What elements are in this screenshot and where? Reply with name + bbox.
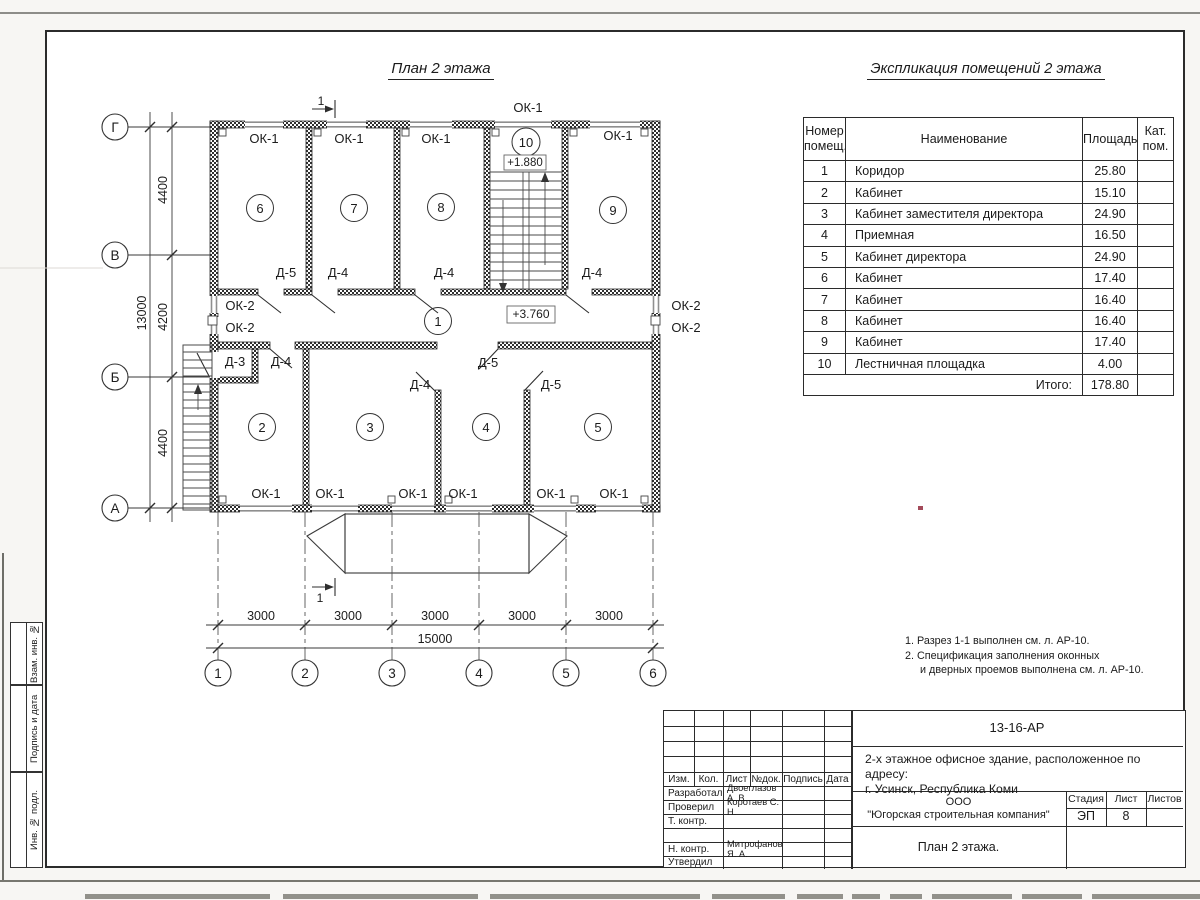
- level-value: +1.880: [507, 157, 543, 169]
- stamp-label: Подпись и дата: [27, 686, 42, 771]
- axis-letter: Б: [111, 370, 120, 385]
- window-label-ok1: ОК-1: [448, 486, 477, 501]
- notes-block: 1. Разрез 1-1 выполнен см. л. АР-10. 2. …: [905, 634, 1144, 678]
- room-number: 3: [366, 420, 373, 435]
- window-label-ok2: ОК-2: [225, 298, 254, 313]
- room-schedule-table: Номерпомещ. Наименование Площадь Кат.пом…: [803, 117, 1174, 396]
- stamp-blank-cell: [11, 773, 27, 867]
- role-name: Коротаев С. Н.: [723, 800, 782, 814]
- room-no: 6: [804, 267, 846, 288]
- axis-letter: В: [110, 248, 119, 263]
- table-row: 6Кабинет17.40: [804, 267, 1174, 288]
- room-cat: [1138, 161, 1174, 182]
- room-area: 17.40: [1083, 332, 1138, 353]
- room-cat: [1138, 182, 1174, 203]
- room-no: 8: [804, 310, 846, 331]
- window-labels: ОК-1 ОК-1 ОК-1 ОК-1 ОК-1 ОК-1 ОК-1 ОК-1 …: [225, 100, 700, 501]
- door-label-d5: Д-5: [478, 355, 498, 370]
- scanned-drawing-sheet: 1 2 3 4 5 6 7 8 9 10 +1.880 +3.760 ОК-1 …: [0, 0, 1200, 900]
- note-line: 1. Разрез 1-1 выполнен см. л. АР-10.: [905, 634, 1144, 649]
- role-label: Разработал: [664, 786, 723, 800]
- window-label-ok1: ОК-1: [536, 486, 565, 501]
- sheet-value: 8: [1106, 808, 1146, 826]
- room-no: 3: [804, 203, 846, 224]
- table-row: 4Приемная16.50: [804, 225, 1174, 246]
- room-area: 16.40: [1083, 310, 1138, 331]
- room-no: 4: [804, 225, 846, 246]
- room-number: 4: [482, 420, 489, 435]
- door-label-d4: Д-4: [434, 265, 454, 280]
- axis-number: 1: [214, 666, 222, 681]
- window-label-ok1: ОК-1: [334, 131, 363, 146]
- window-label-ok1: ОК-1: [421, 131, 450, 146]
- room-cat: [1138, 246, 1174, 267]
- table-row: 7Кабинет16.40: [804, 289, 1174, 310]
- stage-label: Стадия: [1066, 791, 1106, 808]
- room-number: 2: [258, 420, 265, 435]
- door-label-d5: Д-5: [276, 265, 296, 280]
- window-label-ok1: ОК-1: [398, 486, 427, 501]
- scan-edge-bottom: [0, 880, 1200, 882]
- dim-bottom: 3000: [508, 609, 536, 623]
- level-value: +3.760: [512, 307, 549, 321]
- room-no: 5: [804, 246, 846, 267]
- room-area: 24.90: [1083, 246, 1138, 267]
- table-row: 9Кабинет17.40: [804, 332, 1174, 353]
- room-number: 7: [350, 201, 357, 216]
- room-no: 1: [804, 161, 846, 182]
- door-label-d3: Д-3: [225, 354, 245, 369]
- dim-left: 4200: [156, 303, 170, 331]
- margin-stamp-vzam: Взам. инв. №: [10, 622, 43, 685]
- door-label-d4: Д-4: [271, 354, 291, 369]
- total-label: Итого:: [804, 374, 1083, 395]
- col-kol: Кол.: [694, 772, 723, 786]
- room-name: Коридор: [846, 161, 1083, 182]
- axis-letter: Г: [111, 120, 119, 135]
- stamp-blank-cell: [11, 623, 27, 684]
- room-area: 15.10: [1083, 182, 1138, 203]
- schedule-header-row: Номерпомещ. Наименование Площадь Кат.пом…: [804, 118, 1174, 161]
- document-number: 13-16-АР: [851, 711, 1183, 746]
- scan-artifact-strip: [0, 893, 1200, 900]
- room-no: 10: [804, 353, 846, 374]
- col-izm: Изм.: [664, 772, 694, 786]
- dim-left: 4400: [156, 176, 170, 204]
- room-name: Кабинет: [846, 267, 1083, 288]
- window-label-ok2: ОК-2: [671, 320, 700, 335]
- room-cat: [1138, 310, 1174, 331]
- sheet-label: Лист: [1106, 791, 1146, 808]
- total-area: 178.80: [1083, 374, 1138, 395]
- window-label-ok1: ОК-1: [513, 100, 542, 115]
- door-labels: Д-5 Д-4 Д-4 Д-4 Д-3 Д-4 Д-5 Д-4 Д-5: [225, 265, 602, 392]
- room-name: Кабинет: [846, 289, 1083, 310]
- note-line: и дверных проемов выполнена см. л. АР-10…: [905, 663, 1144, 678]
- stamp-label: Инв. № подл.: [27, 773, 42, 867]
- room-area: 17.40: [1083, 267, 1138, 288]
- room-cat: [1138, 225, 1174, 246]
- room-cat: [1138, 267, 1174, 288]
- room-cat: [1138, 203, 1174, 224]
- col-header-name: Наименование: [846, 118, 1083, 161]
- table-row: 5Кабинет директора24.90: [804, 246, 1174, 267]
- room-name: Кабинет директора: [846, 246, 1083, 267]
- title-block: Изм. Кол. Лист №док. Подпись Дата Разраб…: [663, 710, 1186, 868]
- door-label-d4: Д-4: [410, 377, 430, 392]
- table-row: 3Кабинет заместителя директора24.90: [804, 203, 1174, 224]
- margin-stamp-inv: Инв. № подл.: [10, 772, 43, 868]
- table-row: 2Кабинет15.10: [804, 182, 1174, 203]
- dim-bottom: 3000: [421, 609, 449, 623]
- dim-left: 4400: [156, 429, 170, 457]
- dimension-labels: 4400 4200 4400 13000 3000 3000 3000 3000…: [135, 176, 623, 646]
- axis-number: 3: [388, 666, 396, 681]
- window-label-ok2: ОК-2: [225, 320, 254, 335]
- scan-edge-left: [2, 553, 4, 882]
- door-label-d4: Д-4: [328, 265, 348, 280]
- col-header-area: Площадь: [1083, 118, 1138, 161]
- window-label-ok1: ОК-1: [603, 128, 632, 143]
- table-row: 8Кабинет16.40: [804, 310, 1174, 331]
- room-number: 8: [437, 200, 444, 215]
- note-line: 2. Спецификация заполнения оконных: [905, 649, 1144, 664]
- col-header-number: Номерпомещ.: [804, 118, 846, 161]
- object-description: 2-х этажное офисное здание, расположенно…: [851, 746, 1183, 791]
- room-area: 16.40: [1083, 289, 1138, 310]
- margin-stamp-podpis: Подпись и дата: [10, 685, 43, 772]
- room-area: 24.90: [1083, 203, 1138, 224]
- axis-number: 4: [475, 666, 483, 681]
- scan-red-speck: [918, 506, 923, 510]
- room-cat: [1138, 289, 1174, 310]
- dim-bottom: 3000: [595, 609, 623, 623]
- role-label: Проверил: [664, 800, 723, 814]
- plan-title: План 2 этажа: [341, 60, 541, 80]
- dim-bottom-total: 15000: [418, 632, 453, 646]
- dim-bottom: 3000: [334, 609, 362, 623]
- role-label: Утвердил: [664, 856, 723, 869]
- room-number: 9: [609, 203, 616, 218]
- exterior-door-opening: [208, 352, 220, 378]
- stamp-blank-cell: [11, 686, 27, 771]
- dim-bottom: 3000: [247, 609, 275, 623]
- object-line: 2-х этажное офисное здание, расположенно…: [865, 752, 1183, 782]
- company-name: ООО "Югорская строительная компания": [851, 791, 1066, 826]
- room-area: 16.50: [1083, 225, 1138, 246]
- entrance-canopy: [307, 514, 567, 573]
- col-date: Дата: [824, 772, 851, 786]
- schedule-title: Экспликация помещений 2 этажа: [856, 60, 1116, 80]
- room-cat: [1138, 353, 1174, 374]
- section-mark-number: 1: [318, 94, 325, 108]
- role-name: [723, 814, 782, 828]
- section-mark-number: 1: [317, 591, 324, 605]
- total-cat: [1138, 374, 1174, 395]
- axis-number: 6: [649, 666, 657, 681]
- role-label: [664, 828, 723, 842]
- axis-number: 2: [301, 666, 309, 681]
- drawing-title: План 2 этажа.: [851, 826, 1066, 869]
- axis-number: 5: [562, 666, 570, 681]
- role-label: Н. контр.: [664, 842, 723, 856]
- window-label-ok1: ОК-1: [599, 486, 628, 501]
- company-line: ООО: [946, 796, 972, 808]
- room-area: 25.80: [1083, 161, 1138, 182]
- axes-and-dimensions: [102, 112, 666, 686]
- room-number: 10: [519, 135, 533, 150]
- sheets-label: Листов: [1146, 791, 1183, 808]
- stamp-label: Взам. инв. №: [27, 623, 42, 684]
- room-no: 7: [804, 289, 846, 310]
- door-label-d5: Д-5: [541, 377, 561, 392]
- room-name: Кабинет заместителя директора: [846, 203, 1083, 224]
- room-no: 9: [804, 332, 846, 353]
- role-label: Т. контр.: [664, 814, 723, 828]
- room-cat: [1138, 332, 1174, 353]
- external-stair: [183, 345, 212, 510]
- table-row: 10Лестничная площадка4.00: [804, 353, 1174, 374]
- dim-left-total: 13000: [135, 296, 149, 331]
- window-label-ok1: ОК-1: [251, 486, 280, 501]
- room-number: 1: [434, 314, 441, 329]
- col-header-cat: Кат.пом.: [1138, 118, 1174, 161]
- stage-value: ЭП: [1066, 808, 1106, 826]
- room-name: Приемная: [846, 225, 1083, 246]
- room-name: Кабинет: [846, 332, 1083, 353]
- axis-labels: Г В Б А 1 2 3 4 5 6: [110, 120, 656, 681]
- room-number: 6: [256, 201, 263, 216]
- room-number: 5: [594, 420, 601, 435]
- company-line: "Югорская строительная компания": [867, 809, 1049, 821]
- door-label-d4: Д-4: [582, 265, 602, 280]
- room-name: Кабинет: [846, 182, 1083, 203]
- role-name: [723, 856, 782, 869]
- room-name: Кабинет: [846, 310, 1083, 331]
- axis-letter: А: [110, 501, 119, 516]
- room-name: Лестничная площадка: [846, 353, 1083, 374]
- table-row: 1Коридор25.80: [804, 161, 1174, 182]
- role-name: Митрофанов Я. А.: [723, 842, 782, 856]
- window-label-ok2: ОК-2: [671, 298, 700, 313]
- window-label-ok1: ОК-1: [315, 486, 344, 501]
- window-label-ok1: ОК-1: [249, 131, 278, 146]
- room-no: 2: [804, 182, 846, 203]
- schedule-total-row: Итого:178.80: [804, 374, 1174, 395]
- col-sign: Подпись: [782, 772, 824, 786]
- stairwell: [490, 172, 562, 293]
- room-area: 4.00: [1083, 353, 1138, 374]
